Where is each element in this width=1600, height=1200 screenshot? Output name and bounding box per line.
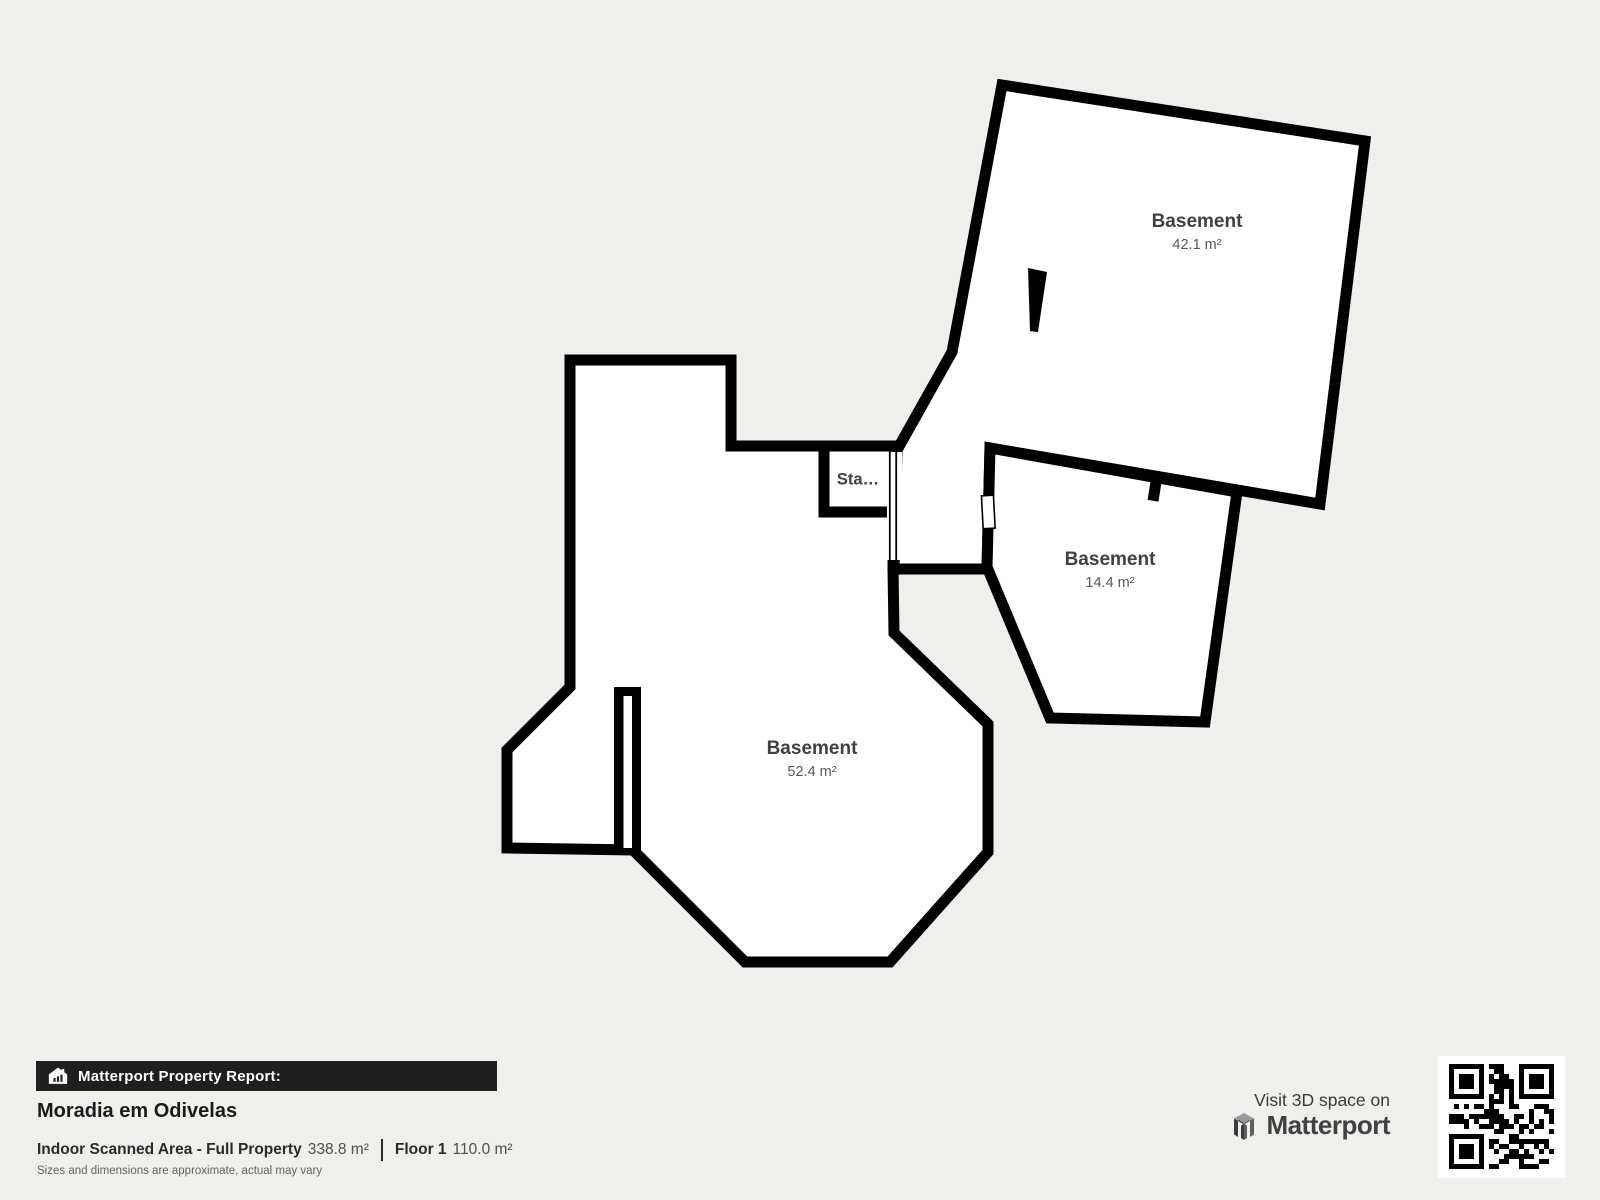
floor-plan (0, 0, 1600, 1200)
notch-wall (614, 687, 641, 853)
disclaimer-text: Sizes and dimensions are approximate, ac… (37, 1165, 322, 1177)
house-chart-icon (48, 1066, 68, 1086)
wall-opening-double-line (887, 448, 902, 563)
report-badge-bar: Matterport Property Report: (36, 1061, 497, 1091)
matterport-wordmark: Matterport (1266, 1110, 1390, 1141)
scanned-area-value: 338.8 m² (308, 1141, 369, 1159)
qr-code (1438, 1056, 1565, 1178)
matterport-property-report-page: { "plan": { "rooms": [ { "id": "basement… (0, 0, 1600, 1200)
floor-label: Floor 1 (395, 1141, 447, 1159)
scanned-area-label: Indoor Scanned Area - Full Property (37, 1141, 302, 1159)
divider (381, 1139, 383, 1161)
report-badge-text: Matterport Property Report: (78, 1068, 281, 1085)
visit-3d-text: Visit 3D space on (1254, 1090, 1390, 1111)
matterport-brand: Matterport (1230, 1110, 1390, 1141)
floor-value: 110.0 m² (453, 1141, 513, 1159)
stairs-room-floor (830, 452, 890, 507)
property-title: Moradia em Odivelas (37, 1100, 237, 1123)
area-info-row: Indoor Scanned Area - Full Property 338.… (37, 1139, 513, 1161)
door-marker (981, 495, 995, 529)
room-basement-small (981, 448, 1237, 722)
matterport-logo-icon (1230, 1112, 1258, 1140)
